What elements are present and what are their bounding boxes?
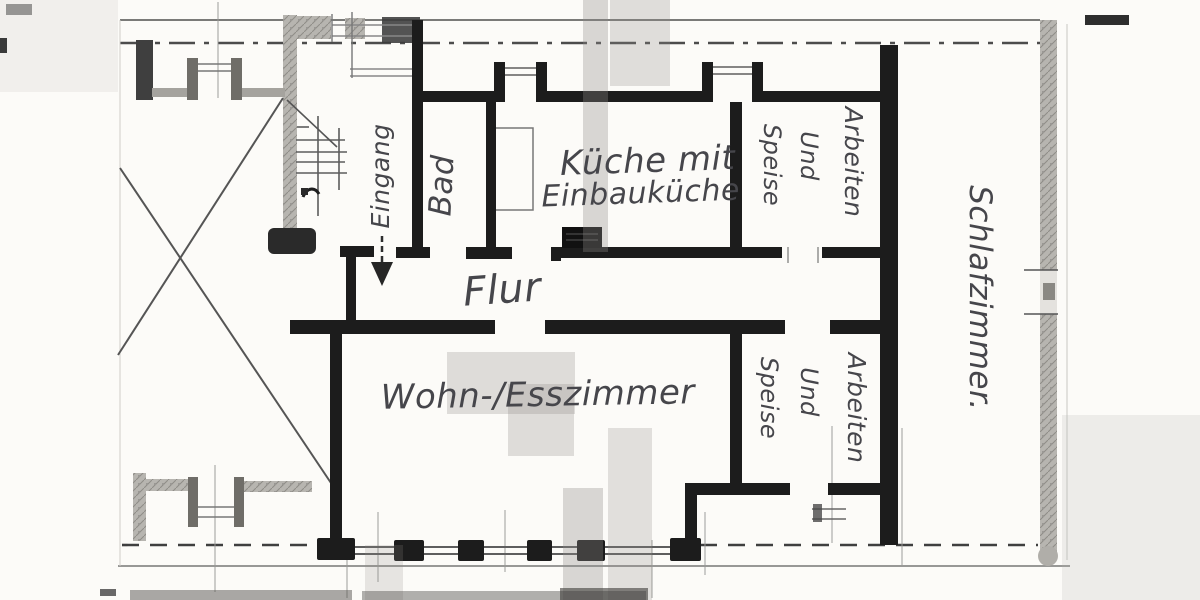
room-label-und-top: Und [795, 131, 823, 181]
room-label-speise-top: Speise [758, 124, 786, 206]
room-label-flur: Flur [462, 264, 545, 315]
room-label-kueche-line2: Einbauküche [541, 173, 741, 215]
room-label-arbeiten-bottom: Arbeiten [842, 351, 871, 464]
room-label-arbeiten-top: Arbeiten [839, 105, 868, 218]
room-label-schlafzimmer: Schlafzimmer. [962, 185, 998, 411]
room-label-bad: Bad [422, 154, 461, 217]
room-label-wohn-esszimmer: Wohn-/Esszimmer [380, 372, 696, 418]
loggia-window-mark [813, 504, 822, 522]
floor-plan-drawing: Eingang Bad Küche mit Einbauküche Speise… [0, 0, 1200, 600]
scanned-floor-plan-page: Eingang Bad Küche mit Einbauküche Speise… [0, 0, 1200, 600]
room-label-eingang: Eingang [366, 124, 395, 229]
room-label-und-bottom: Und [795, 367, 823, 417]
room-label-speise-bottom: Speise [755, 357, 783, 439]
top-right-wall-mark [1085, 15, 1129, 25]
